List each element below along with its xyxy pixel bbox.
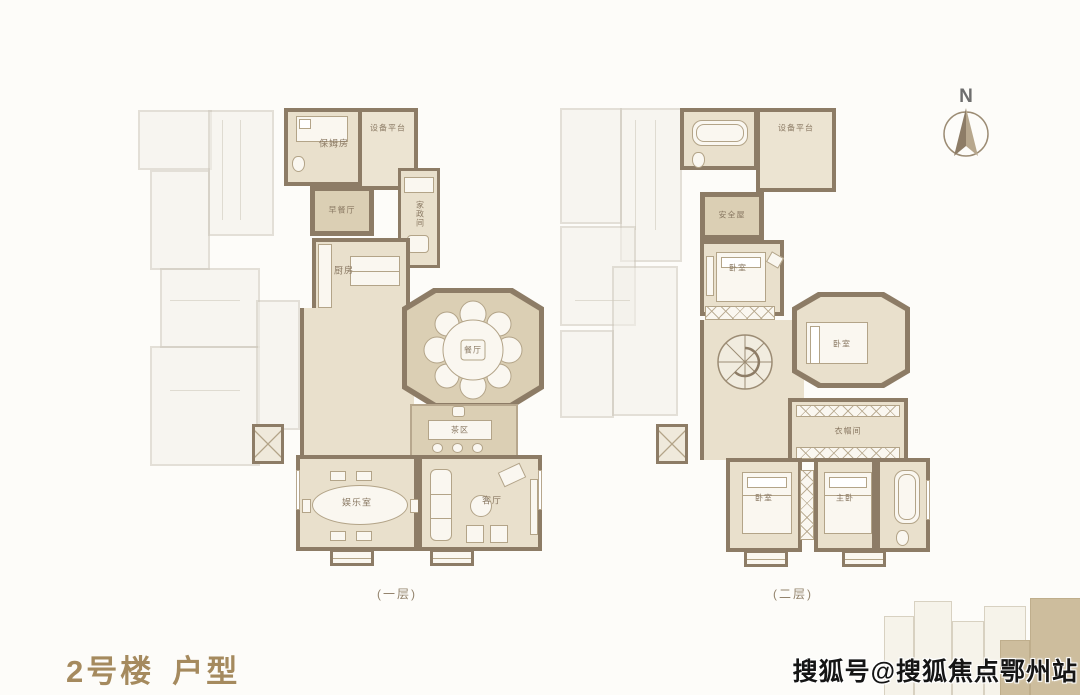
floorplan-page: 保姆房 设备平台 早餐厅 家政间 厨房 — [0, 0, 1080, 695]
room-label-safe: 安全屋 — [719, 210, 746, 221]
bathtub-icon — [894, 470, 920, 524]
compass-icon — [938, 104, 994, 166]
wardrobe-icon — [705, 306, 775, 320]
bay-window-icon — [744, 550, 788, 567]
armchair-icon — [766, 251, 784, 268]
room-label-master: 主卧 — [836, 493, 854, 504]
room-bedroom3 — [726, 458, 802, 552]
room-bath-f2 — [680, 108, 758, 170]
bay-window-icon — [842, 550, 886, 567]
room-label-closet: 衣帽间 — [835, 426, 862, 437]
toilet-icon — [896, 530, 909, 546]
bed-icon — [716, 252, 766, 302]
room-label-bedroom1: 卧室 — [729, 263, 747, 274]
page-title: 2号楼户型 — [66, 646, 240, 691]
spiral-stair-icon — [714, 330, 776, 394]
elevator-shaft-icon-2 — [656, 424, 688, 464]
room-label-bedroom3: 卧室 — [755, 493, 773, 504]
room-bedroom1 — [700, 240, 784, 316]
plan-floor2: 设备平台 安全屋 卧室 — [0, 0, 1080, 620]
watermark-text: 搜狐号@搜狐焦点鄂州站 — [793, 652, 1078, 688]
cabinet-divider-icon — [800, 470, 814, 540]
floor2-caption: (二层) — [773, 585, 813, 602]
room-label-bedroom2: 卧室 — [833, 339, 851, 350]
bathtub-icon — [692, 120, 748, 146]
building-number: 2号楼 — [66, 654, 154, 689]
room-equipment-f2 — [756, 108, 836, 192]
room-label-equipment-f2: 设备平台 — [778, 123, 814, 134]
toilet-icon — [692, 152, 705, 168]
unit-type-label: 户型 — [172, 654, 240, 689]
room-master-bath — [876, 458, 930, 552]
room-master — [814, 458, 876, 552]
